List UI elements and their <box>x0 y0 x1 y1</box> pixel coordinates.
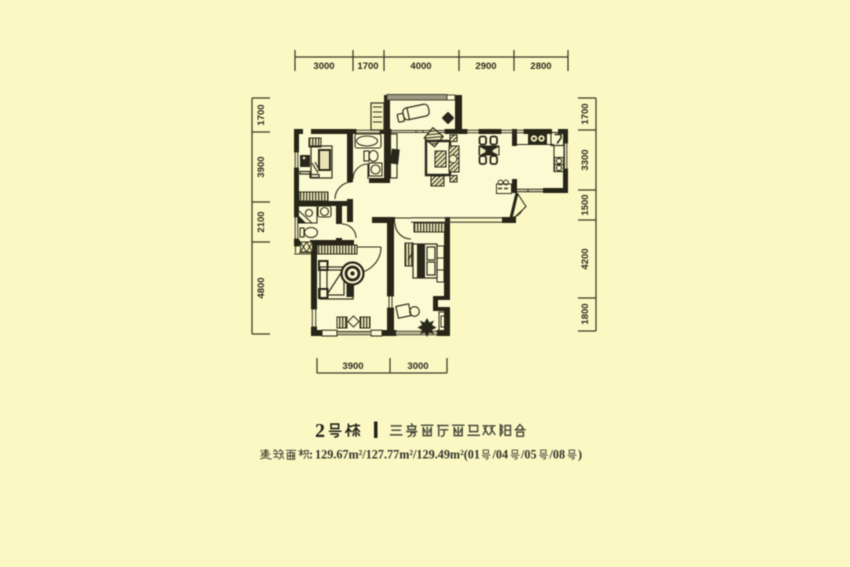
svg-text:2: 2 <box>315 420 325 442</box>
svg-text:3900: 3900 <box>342 361 363 372</box>
svg-text:1700: 1700 <box>580 103 591 124</box>
svg-text:1700: 1700 <box>256 104 267 125</box>
svg-text::: : <box>309 448 313 462</box>
svg-text:1800: 1800 <box>580 303 591 324</box>
svg-text:3000: 3000 <box>313 61 334 72</box>
svg-text:4800: 4800 <box>256 277 267 298</box>
svg-text:3900: 3900 <box>256 156 267 177</box>
svg-text:2100: 2100 <box>256 211 267 232</box>
svg-text:/05: /05 <box>520 448 537 462</box>
svg-text:1700: 1700 <box>357 61 378 72</box>
svg-text:2900: 2900 <box>475 61 496 72</box>
svg-text:/04: /04 <box>492 448 509 462</box>
svg-text:129.67m²/127.77m²/129.49m²(01: 129.67m²/127.77m²/129.49m²(01 <box>315 448 480 462</box>
svg-text:3000: 3000 <box>407 361 428 372</box>
svg-text:): ) <box>578 448 582 462</box>
svg-text:4000: 4000 <box>410 61 431 72</box>
svg-text:1500: 1500 <box>580 194 591 215</box>
svg-text:/08: /08 <box>549 448 566 462</box>
svg-text:3300: 3300 <box>580 149 591 170</box>
svg-text:4200: 4200 <box>580 248 591 269</box>
svg-text:2800: 2800 <box>530 61 551 72</box>
